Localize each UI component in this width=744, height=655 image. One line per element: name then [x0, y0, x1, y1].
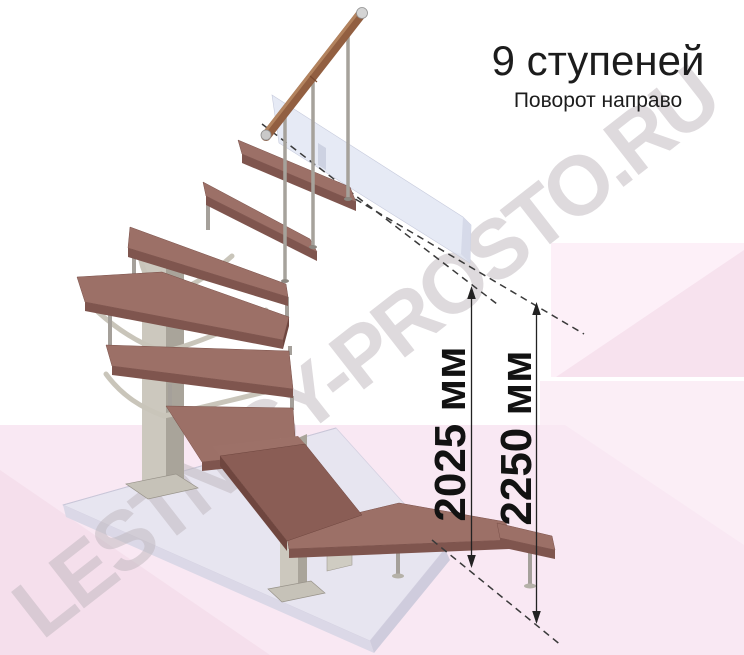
arrow-up-icon: [467, 286, 476, 299]
step-1-bottom: [497, 523, 555, 559]
dimension-label-stair-height: 2025 мм: [429, 346, 473, 521]
page-title: 9 ступеней: [492, 38, 705, 84]
title-block: 9 ступеней Поворот направо: [492, 38, 705, 113]
step-8: [203, 182, 317, 261]
page-subtitle: Поворот направо: [492, 88, 705, 113]
step-5-winder: [106, 345, 293, 398]
front-post-base-plate: [268, 581, 325, 602]
handrail-top-cap: [357, 8, 368, 19]
back-post-base-plate: [126, 474, 198, 499]
arrow-down-icon: [532, 611, 541, 624]
dimension-label-total-height: 2250 мм: [495, 350, 539, 525]
staircase-diagram: LESTNICY-PROSTO.RU: [0, 0, 744, 655]
extension-line-lower: [345, 193, 584, 334]
handrail-bottom-cap: [261, 130, 271, 140]
arrow-down-icon: [467, 555, 476, 568]
